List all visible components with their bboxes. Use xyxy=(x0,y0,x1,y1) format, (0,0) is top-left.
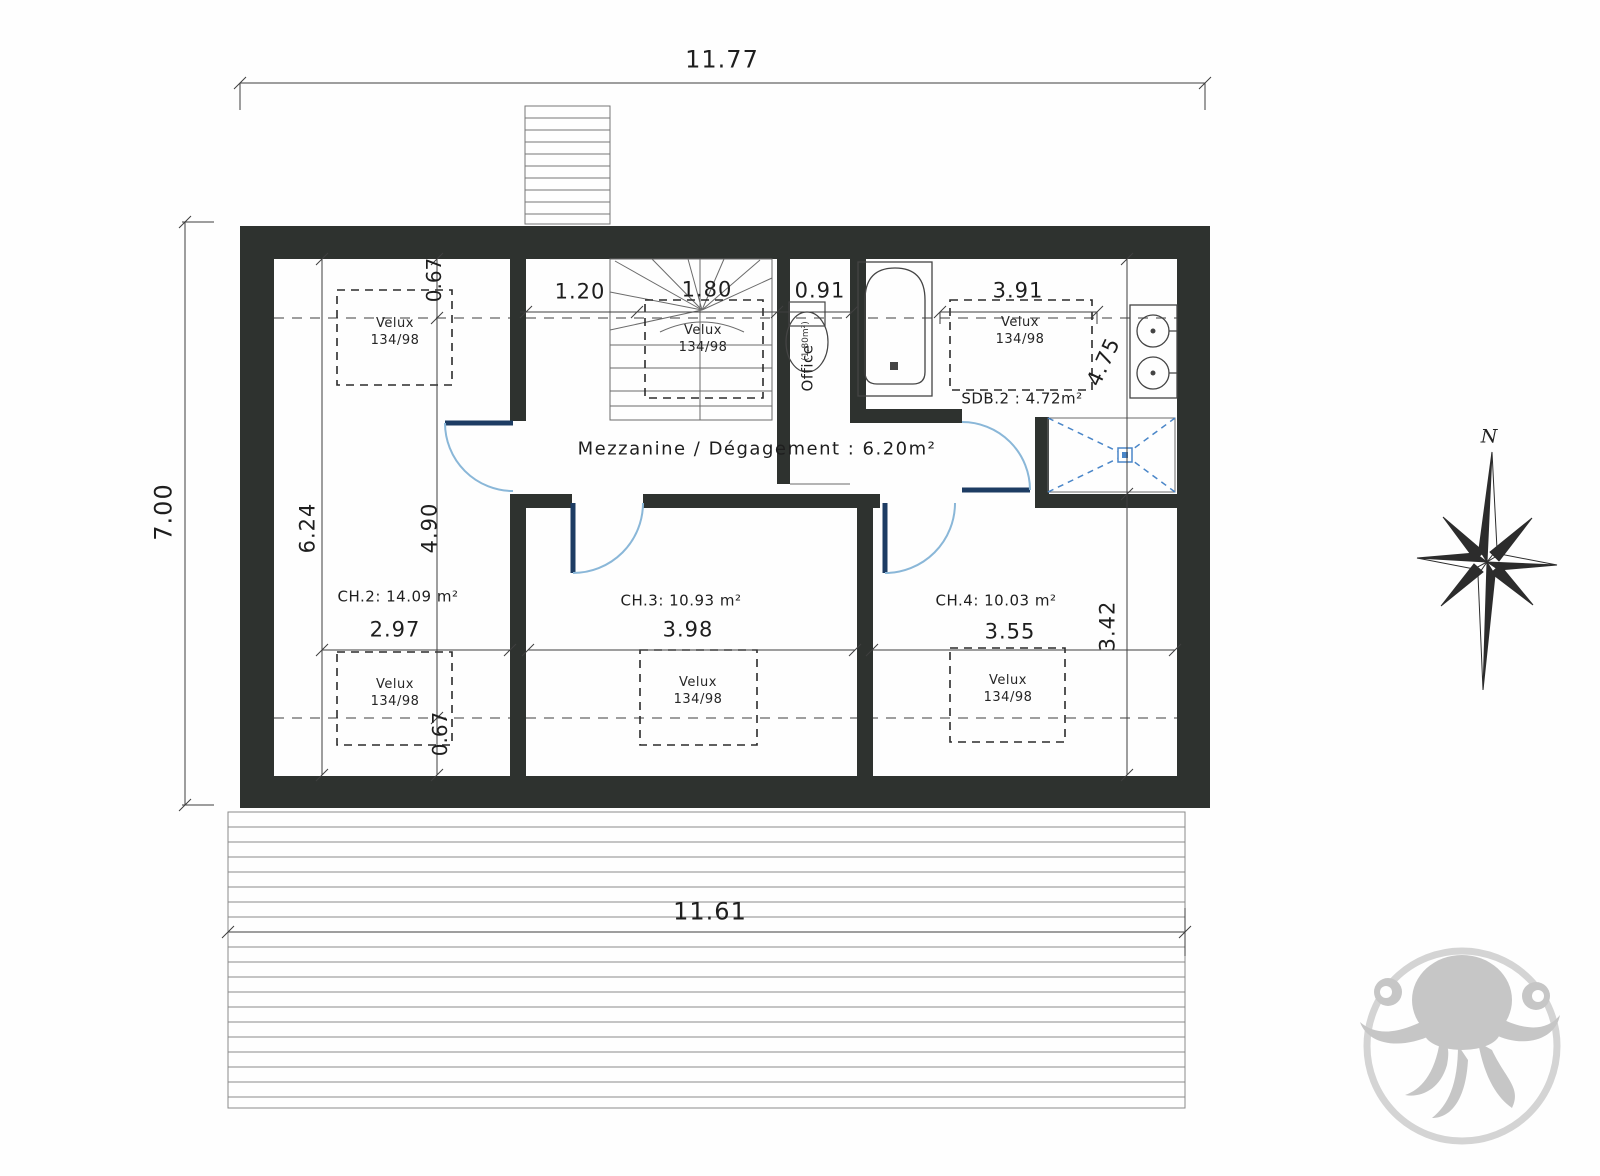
dim-overall-top: 11.77 xyxy=(685,44,759,75)
dim-mezzanine-left: 1.20 xyxy=(555,278,606,305)
velux-label-ch2-bottom: Velux 134/98 xyxy=(371,677,420,711)
room-label-ch4: CH.4: 10.03 m² xyxy=(936,591,1057,611)
octopus-watermark-icon xyxy=(1360,951,1560,1141)
velux-label-sdb2: Velux 134/98 xyxy=(996,315,1045,349)
room-label-sdb2: SDB.2 : 4.72m² xyxy=(961,389,1082,409)
bathtub-icon xyxy=(858,262,932,396)
double-basin-icon xyxy=(1130,305,1177,398)
dim-ch4-width: 3.55 xyxy=(985,618,1036,645)
dim-office-width: 0.91 xyxy=(795,277,846,304)
dim-sdb2-width: 3.91 xyxy=(993,277,1044,304)
floor-plan: 11.77 7.00 11.61 1.20 1.80 0.91 3.91 0.6… xyxy=(0,0,1600,1176)
velux-label-ch4-bottom: Velux 134/98 xyxy=(984,673,1033,707)
dim-stairs-width: 1.80 xyxy=(682,276,733,303)
dim-ch2-top-offset: 0.67 xyxy=(421,258,447,303)
dimension-lines xyxy=(179,77,1211,956)
office-area-note: (1,80m²) xyxy=(801,321,813,360)
dim-ch2-width: 2.97 xyxy=(370,616,421,643)
dim-overall-left: 7.00 xyxy=(148,483,179,540)
terrace-decking xyxy=(228,812,1185,1108)
dim-ch2-inner-depth: 4.90 xyxy=(416,503,443,554)
dim-ch3-width: 3.98 xyxy=(663,616,714,643)
room-label-ch2: CH.2: 14.09 m² xyxy=(338,587,459,607)
dim-ch2-bottom-offset: 0.67 xyxy=(427,712,453,757)
velux-label-ch2-top: Velux 134/98 xyxy=(371,316,420,350)
dim-ch2-left-depth: 6.24 xyxy=(294,503,321,554)
room-label-ch3: CH.3: 10.93 m² xyxy=(621,591,742,611)
shower-icon xyxy=(1048,418,1175,492)
velux-label-ch3-bottom: Velux 134/98 xyxy=(674,675,723,709)
chimney xyxy=(525,106,610,224)
plan-linework xyxy=(0,0,1600,1176)
velux-label-stairs: Velux 134/98 xyxy=(679,323,728,357)
compass-rose-icon xyxy=(1417,452,1557,690)
room-label-mezzanine: Mezzanine / Dégagement : 6.20m² xyxy=(578,437,937,460)
compass-north-label: N xyxy=(1481,425,1498,450)
dim-ch4-depth: 3.42 xyxy=(1094,601,1121,652)
sous-pente-lines xyxy=(274,318,1177,718)
dim-terrace-bottom: 11.61 xyxy=(673,896,747,927)
